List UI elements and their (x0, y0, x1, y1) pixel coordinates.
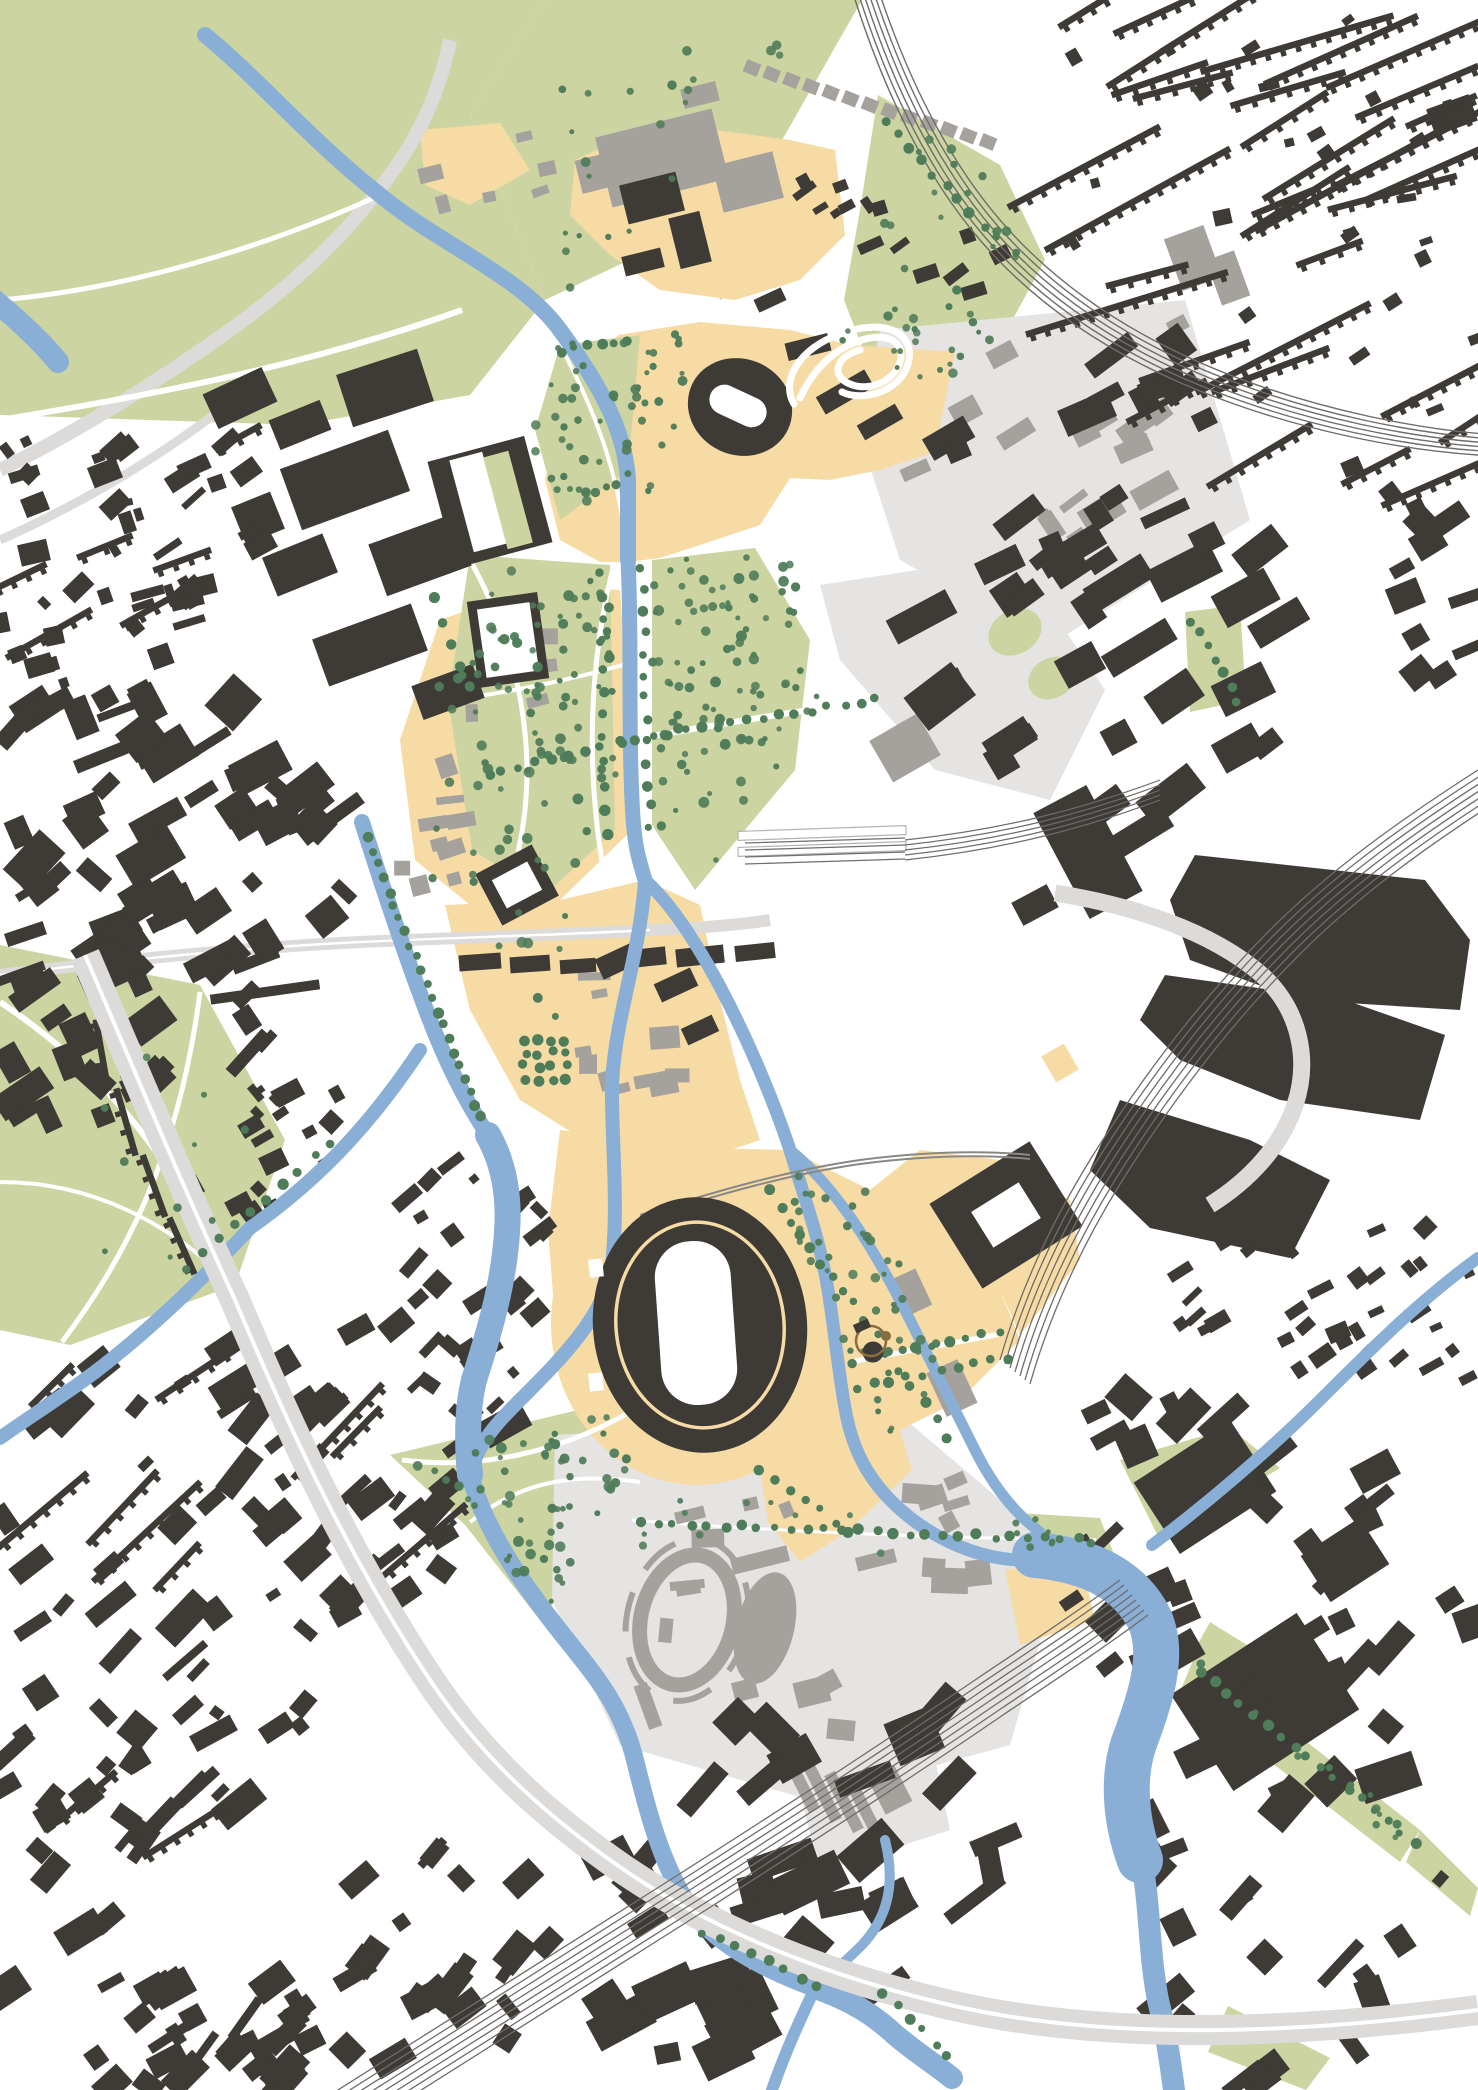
map-canvas (0, 0, 1478, 2090)
masterplan-map (0, 0, 1478, 2090)
